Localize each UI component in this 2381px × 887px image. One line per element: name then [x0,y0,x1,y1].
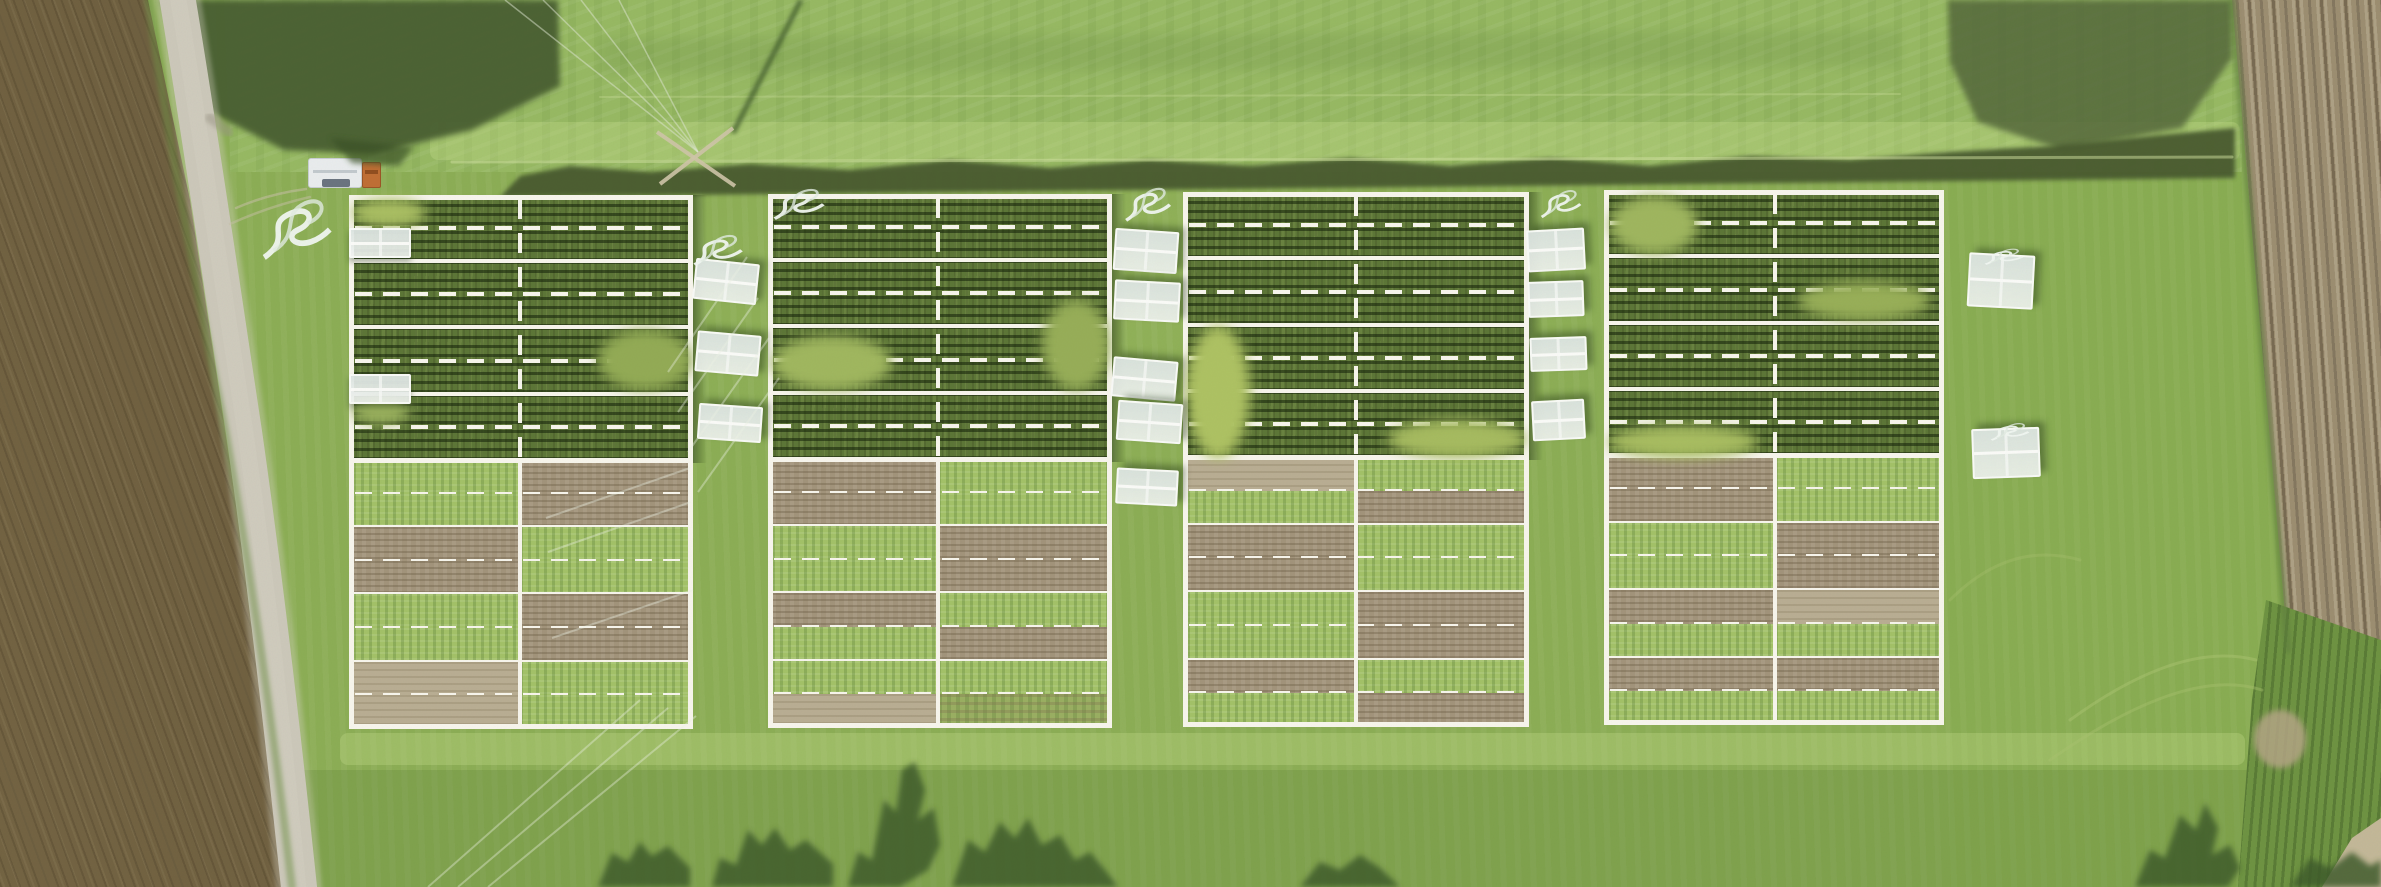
truck-cab [362,162,381,188]
aerial-field-trial-photo [0,0,2381,887]
truck-windshield [322,179,350,187]
truck-roof-line [313,170,357,173]
cab-windshield-line [365,170,379,174]
field-truck [0,0,2381,887]
